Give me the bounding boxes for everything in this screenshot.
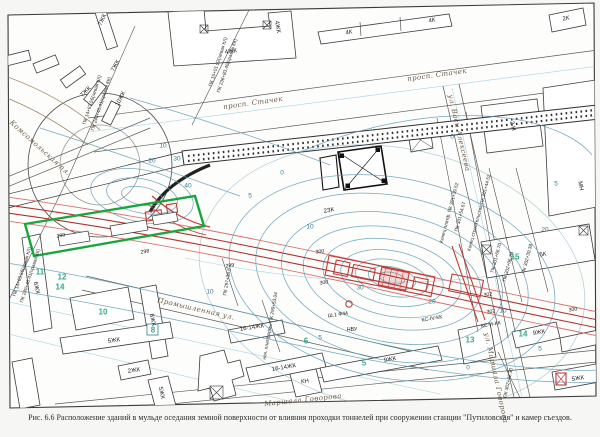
building-mn <box>543 80 600 216</box>
site-plan-drawing <box>0 0 600 437</box>
scanned-site-plan: просп. Стачекпросп. Стачекул. Васи Алекс… <box>0 0 600 437</box>
small-box-8 <box>147 324 158 335</box>
building-kn <box>290 369 322 397</box>
figure-caption: Рис. 6.6 Расположение зданий в мульде ос… <box>20 413 580 422</box>
